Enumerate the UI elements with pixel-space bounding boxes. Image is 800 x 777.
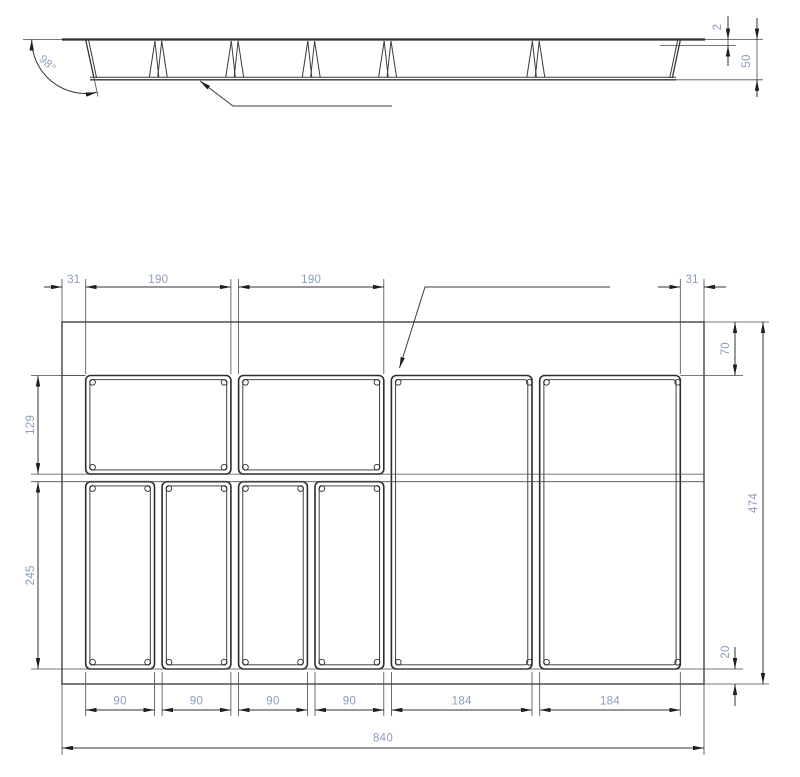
section-divider-2 xyxy=(226,41,244,78)
dimension-value: 50 xyxy=(741,54,753,67)
right-dimensions: 70 474 20 xyxy=(680,322,769,706)
top-dimensions: 31 190 190 31 xyxy=(44,274,726,376)
compartment-outer xyxy=(315,482,384,669)
compartment-top-center xyxy=(239,376,384,475)
compartment-narrow-4 xyxy=(315,482,384,669)
corner-fillet xyxy=(90,486,96,492)
corner-fillet xyxy=(90,464,96,470)
wall-face xyxy=(539,41,545,78)
plan-leader-line xyxy=(400,287,611,368)
compartment-inner xyxy=(396,380,528,665)
corner-fillet xyxy=(243,486,249,492)
dimension-value: 70 xyxy=(720,342,732,355)
compartment-inner xyxy=(166,486,226,665)
compartment-outer xyxy=(540,376,681,670)
compartment-inner xyxy=(90,380,227,470)
wall-face xyxy=(535,41,539,78)
dimension-value: 184 xyxy=(452,696,472,708)
compartment-tall-1 xyxy=(391,376,532,670)
dimension-value: 90 xyxy=(113,696,126,708)
wall-face xyxy=(158,41,162,78)
compartment-inner xyxy=(243,486,303,665)
wall-face xyxy=(387,41,391,78)
dimension-value: 2 xyxy=(712,24,724,31)
corner-fillet xyxy=(243,464,249,470)
wall-face xyxy=(162,41,168,78)
compartment-outer xyxy=(391,376,532,670)
dimension-value: 90 xyxy=(343,696,356,708)
plan-view: 31 190 190 31 129 245 70 xyxy=(25,274,769,755)
compartment-top-left xyxy=(86,376,231,475)
corner-fillet xyxy=(243,379,249,385)
corner-fillet xyxy=(298,659,304,665)
wall-face xyxy=(311,41,315,78)
section-divider-1 xyxy=(149,41,167,78)
corner-fillet xyxy=(374,659,380,665)
wall-face xyxy=(149,41,155,78)
compartment-inner xyxy=(544,380,676,665)
compartment-outer xyxy=(162,482,231,669)
section-height-dimension: 50 xyxy=(741,18,757,97)
extension-line xyxy=(94,78,98,97)
corner-fillet xyxy=(298,486,304,492)
section-divider-4 xyxy=(379,41,397,78)
corner-fillet xyxy=(145,659,151,665)
section-divider-5 xyxy=(527,41,545,78)
corner-fillet xyxy=(374,464,380,470)
dimension-value: 20 xyxy=(720,645,732,658)
section-left-wall xyxy=(86,40,98,97)
compartment-narrow-2 xyxy=(162,482,231,669)
corner-fillet xyxy=(395,379,401,385)
corner-fillet xyxy=(319,659,325,665)
corner-fillet xyxy=(90,379,96,385)
bottom-dimensions: 90 90 90 90 184 184 xyxy=(86,672,681,716)
corner-fillet xyxy=(221,464,227,470)
section-view: 98° 2 50 xyxy=(23,16,763,106)
cutlery-tray-technical-drawing: 98° 2 50 xyxy=(0,0,800,777)
compartment-outer xyxy=(239,376,384,475)
corner-fillet xyxy=(221,379,227,385)
corner-fillet xyxy=(166,486,172,492)
dimension-value: 31 xyxy=(67,274,80,286)
corner-fillet xyxy=(243,659,249,665)
wall-face xyxy=(379,41,385,78)
dimension-value: 840 xyxy=(373,733,393,745)
compartment-inner xyxy=(319,486,379,665)
section-divider-3 xyxy=(302,41,320,78)
corner-fillet xyxy=(145,486,151,492)
wall-face xyxy=(391,41,397,78)
compartment-outer xyxy=(239,482,308,669)
dimension-value: 474 xyxy=(748,493,760,513)
compartment-inner xyxy=(243,380,380,470)
dimension-value: 245 xyxy=(25,565,37,585)
corner-fillet xyxy=(544,659,550,665)
drawing-svg: 98° 2 50 xyxy=(0,0,800,777)
compartment-narrow-3 xyxy=(239,482,308,669)
wall-face xyxy=(238,41,244,78)
dimension-value: 184 xyxy=(600,696,620,708)
compartment-outer xyxy=(86,482,155,669)
corner-fillet xyxy=(90,659,96,665)
dimension-value: 90 xyxy=(190,696,203,708)
dimension-value: 90 xyxy=(266,696,279,708)
corner-fillet xyxy=(395,659,401,665)
compartment-inner xyxy=(90,486,150,665)
compartment-narrow-1 xyxy=(86,482,155,669)
section-leader-line xyxy=(200,81,392,106)
compartment-tall-2 xyxy=(540,376,681,670)
wall-face xyxy=(226,41,232,78)
dimension-value: 31 xyxy=(685,274,698,286)
corner-fillet xyxy=(544,379,550,385)
rim-thickness-dimension: 2 xyxy=(712,16,728,66)
corner-fillet xyxy=(374,486,380,492)
wall-face xyxy=(527,41,533,78)
compartment-outer xyxy=(86,376,231,475)
dimension-value: 129 xyxy=(25,415,37,435)
dimension-value: 190 xyxy=(148,274,168,286)
corner-fillet xyxy=(221,486,227,492)
wall-face xyxy=(234,41,238,78)
corner-fillet xyxy=(374,379,380,385)
corner-fillet xyxy=(319,486,325,492)
dimension-value: 190 xyxy=(301,274,321,286)
wall-face xyxy=(315,41,321,78)
angle-value: 98° xyxy=(36,53,57,74)
corner-fillet xyxy=(166,659,172,665)
wall-face xyxy=(302,41,308,78)
corner-fillet xyxy=(221,659,227,665)
